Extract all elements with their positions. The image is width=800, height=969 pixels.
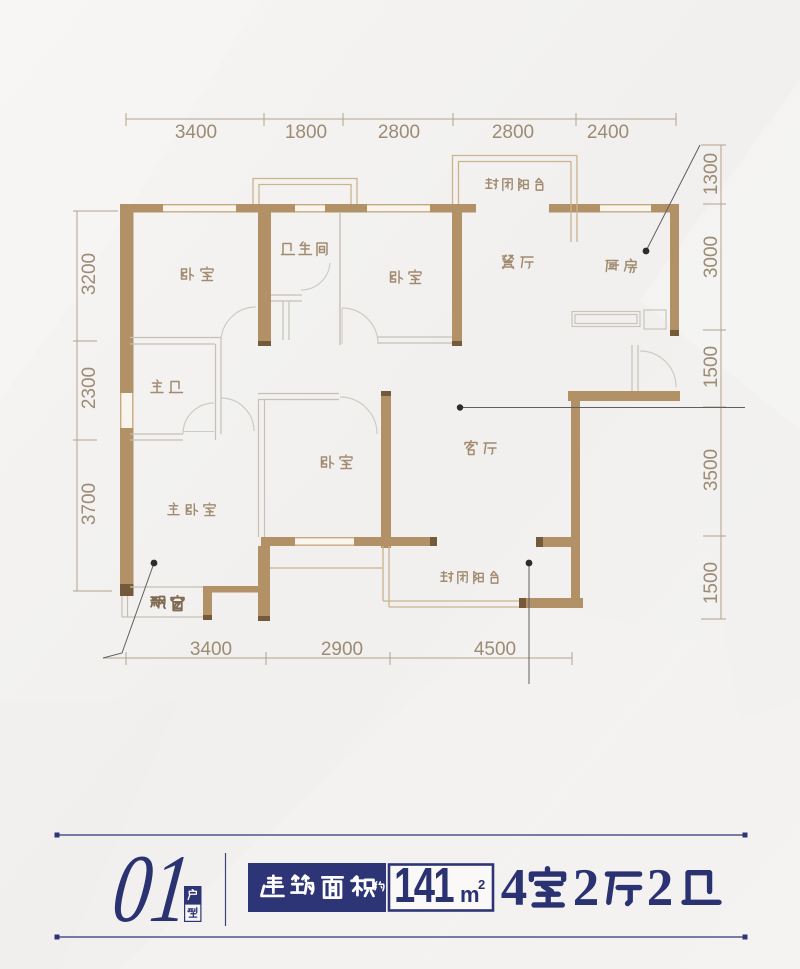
svg-text:3000: 3000 <box>701 236 722 278</box>
svg-text:2800: 2800 <box>378 122 420 143</box>
svg-text:3700: 3700 <box>79 483 100 525</box>
svg-text:3400: 3400 <box>175 122 217 143</box>
svg-text:3400: 3400 <box>190 639 232 660</box>
svg-text:2: 2 <box>478 877 485 892</box>
svg-text:m: m <box>460 882 480 907</box>
svg-text:2: 2 <box>573 859 600 917</box>
svg-text:1500: 1500 <box>701 562 722 604</box>
svg-text:3500: 3500 <box>701 449 722 491</box>
svg-text:01: 01 <box>107 834 196 942</box>
svg-text:2900: 2900 <box>321 639 363 660</box>
svg-text:2400: 2400 <box>587 122 629 143</box>
svg-text:3200: 3200 <box>79 253 100 295</box>
svg-text:4: 4 <box>501 859 528 917</box>
svg-text:4500: 4500 <box>474 639 516 660</box>
svg-text:2300: 2300 <box>79 367 100 409</box>
svg-text:2800: 2800 <box>492 122 534 143</box>
svg-text:2: 2 <box>647 859 674 917</box>
svg-text:1800: 1800 <box>285 122 327 143</box>
svg-text:1300: 1300 <box>701 153 722 195</box>
svg-text:1500: 1500 <box>701 346 722 388</box>
svg-text:141: 141 <box>394 859 454 914</box>
